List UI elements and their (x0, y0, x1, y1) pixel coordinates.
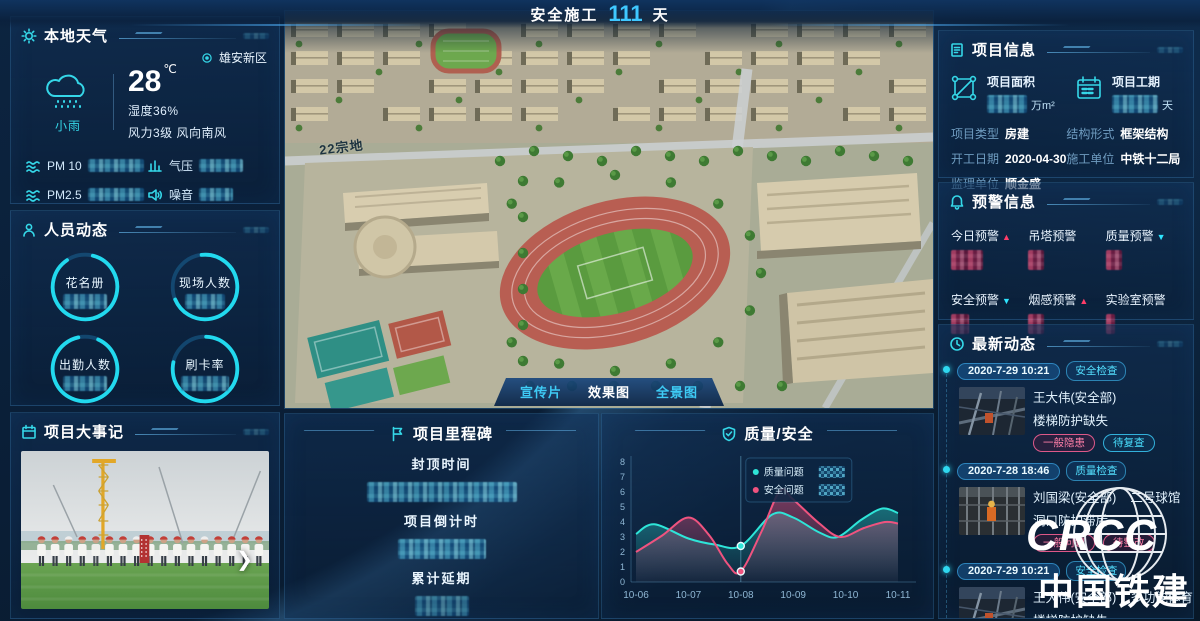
svg-text:6: 6 (620, 487, 625, 497)
document-icon (949, 42, 965, 58)
alarm-bell-icon (949, 194, 965, 210)
milestone-label: 累计延期 (411, 568, 471, 587)
quality-safety-chart: 01234567810-0610-0710-0810-0910-1010-11质… (602, 444, 933, 616)
area-icon (949, 73, 979, 103)
tab-panorama[interactable]: 全景图 (656, 382, 698, 401)
events-title: 项目大事记 (44, 421, 124, 442)
trend-arrow: ▲ (1079, 296, 1088, 306)
alert-today: 今日预警▲ (951, 227, 1028, 275)
event-photo: ❯ (21, 451, 269, 609)
timeline-dot (943, 466, 950, 473)
wind: 风力3级 风向南风 (128, 124, 227, 141)
status-pill: 一般隐患 (1033, 434, 1095, 452)
ring-roster: 花名册 (44, 251, 126, 325)
header-title-prefix: 安全施工 (530, 4, 598, 25)
metric-noise: 噪音 (147, 186, 269, 203)
svg-text:3: 3 (620, 532, 625, 542)
ring-value-redacted (63, 376, 107, 391)
pm10-value-redacted (88, 159, 144, 172)
svg-text:安全问题: 安全问题 (764, 484, 804, 497)
sun-icon (21, 28, 37, 44)
dashboard: 安全施工 111 天 本地天气 雄安新区 小雨 (0, 0, 1200, 621)
pm25-value-redacted (88, 188, 144, 201)
news-issue: 楼梯防护缺失 (1033, 610, 1193, 619)
ring-onsite: 现场人数 (164, 251, 246, 325)
trend-arrow: ▼ (1157, 232, 1166, 242)
aerial-render (285, 11, 933, 408)
carousel-next-button[interactable]: ❯ (236, 547, 253, 572)
news-photo (959, 387, 1025, 435)
alerts-panel: 预警信息 今日预警▲ 吊塔预警 质量预警▼ 安全预警▼ 烟感预警▲ 实验室预警 (938, 182, 1194, 320)
milestone-title: 项目里程碑 (413, 423, 493, 444)
info-title: 项目信息 (972, 39, 1036, 60)
header-title-suffix: 天 (653, 4, 670, 25)
weather-panel: 本地天气 雄安新区 小雨 28℃ 湿度36% 风力3级 风向南风 (10, 16, 280, 204)
trend-arrow: ▼ (1002, 296, 1011, 306)
svg-text:10-10: 10-10 (833, 590, 859, 601)
svg-text:质量问题: 质量问题 (764, 466, 804, 479)
ring-label: 现场人数 (179, 274, 231, 291)
news-date: 2020-7-29 10:21 (957, 363, 1060, 380)
alert-value-redacted (951, 250, 983, 270)
news-panel: 最新动态 2020-7-29 10:21 安全检查 王大伟(安全部) 楼梯防护缺… (938, 324, 1194, 619)
ring-label: 花名册 (65, 274, 104, 291)
svg-text:0: 0 (620, 577, 625, 587)
stat-area: 项目面积 万m² (949, 73, 1064, 113)
news-photo (959, 487, 1025, 535)
alerts-title: 预警信息 (972, 191, 1036, 212)
calendar-icon (21, 424, 37, 440)
news-person: 王大伟(安全部) (1033, 587, 1116, 606)
stat-label: 项目工期 (1112, 73, 1173, 90)
news-tag: 安全检查 (1066, 361, 1126, 381)
personnel-title: 人员动态 (44, 219, 108, 240)
weather-location: 雄安新区 (199, 49, 267, 66)
status-pill: 待整改 (1103, 534, 1155, 552)
news-place: 二号球馆 (1130, 487, 1180, 506)
svg-text:2: 2 (620, 547, 625, 557)
news-photo (959, 587, 1025, 619)
pressure-icon (147, 158, 163, 174)
news-tag: 安全检查 (1066, 561, 1126, 581)
milestone-panel: 项目里程碑 封顶时间 项目倒计时 累计延期 (284, 413, 599, 619)
trend-arrow: ▲ (1002, 232, 1011, 242)
alert-value-redacted (1028, 250, 1044, 270)
project-info-panel: 项目信息 项目面积 万m² (938, 30, 1194, 178)
svg-text:1: 1 (620, 562, 625, 572)
quality-safety-panel: 质量/安全 01234567810-0610-0710-0810-0910-10… (601, 413, 934, 619)
alert-value-redacted (1106, 250, 1122, 270)
svg-text:4: 4 (620, 517, 625, 527)
noise-value-redacted (199, 188, 233, 201)
location-pin-icon (199, 52, 215, 64)
news-date: 2020-7-29 10:21 (957, 563, 1060, 580)
person-icon (21, 222, 37, 238)
calendar-icon (1074, 73, 1104, 103)
milestone-label: 项目倒计时 (404, 511, 479, 530)
timeline-dot (943, 366, 950, 373)
temperature: 28℃ (128, 63, 227, 97)
personnel-panel: 人员动态 花名册 现场人数 出勤人数 刷卡率 (10, 210, 280, 406)
ring-attendance: 出勤人数 (44, 333, 126, 407)
chart-title: 质量/安全 (744, 423, 813, 444)
clock-icon (949, 336, 965, 352)
pm-icon (25, 158, 41, 174)
field-contractor: 施工单位中铁十二局 (1066, 150, 1185, 167)
news-tag: 质量检查 (1066, 461, 1126, 481)
ring-swipe-rate: 刷卡率 (164, 333, 246, 407)
ring-value-redacted (181, 376, 229, 391)
rain-cloud-icon (42, 70, 94, 110)
stat-duration: 项目工期 天 (1074, 73, 1189, 113)
alert-crane: 吊塔预警 (1028, 227, 1105, 275)
speaker-icon (147, 187, 163, 203)
timeline-dot (943, 566, 950, 573)
duration-value-redacted (1112, 95, 1158, 113)
status-pill: 待复查 (1103, 434, 1155, 452)
stat-label: 项目面积 (987, 73, 1055, 90)
milestone-label: 封顶时间 (411, 454, 471, 473)
svg-text:10-07: 10-07 (676, 590, 702, 601)
ring-label: 刷卡率 (185, 356, 224, 373)
status-pill: 一般问题 (1033, 534, 1095, 552)
metric-pm25: PM2.5 (25, 186, 147, 203)
field-structure: 结构形式框架结构 (1066, 125, 1185, 142)
ring-label: 出勤人数 (59, 356, 111, 373)
svg-text:10-06: 10-06 (623, 590, 649, 601)
shield-check-icon (721, 426, 737, 442)
pm-icon (25, 187, 41, 203)
ring-value-redacted (63, 294, 107, 309)
svg-text:8: 8 (620, 457, 625, 467)
news-person: 王大伟(安全部) (1033, 387, 1116, 406)
news-issue: 楼梯防护缺失 (1033, 410, 1193, 429)
metric-pressure: 气压 (147, 157, 269, 174)
svg-text:5: 5 (620, 502, 625, 512)
news-place: 多功能体育馆 (1130, 587, 1194, 606)
tab-promo-video[interactable]: 宣传片 (520, 382, 562, 401)
news-item[interactable]: 2020-7-28 18:46 质量检查 刘国梁(安全部)二号球馆 洞口防护滞后… (957, 461, 1193, 552)
header-days-count: 111 (608, 3, 642, 25)
ring-value-redacted (185, 294, 225, 309)
group-photo (21, 451, 269, 609)
svg-text:10-11: 10-11 (886, 590, 911, 601)
topping-date-redacted (367, 482, 517, 502)
pressure-value-redacted (199, 159, 243, 172)
tab-rendering[interactable]: 效果图 (588, 382, 630, 401)
flag-icon (390, 426, 406, 442)
stat-unit: 天 (1162, 97, 1173, 113)
weather-title: 本地天气 (44, 25, 108, 46)
news-item[interactable]: 2020-7-29 10:21 安全检查 王大伟(安全部)多功能体育馆 楼梯防护… (957, 561, 1193, 619)
news-title: 最新动态 (972, 333, 1036, 354)
news-person: 刘国梁(安全部) (1033, 487, 1116, 506)
stat-unit: 万m² (1031, 97, 1055, 113)
field-start-date: 开工日期2020-04-30 (951, 150, 1066, 167)
svg-text:10-09: 10-09 (780, 590, 806, 601)
area-value-redacted (987, 95, 1027, 113)
field-project-type: 项目类型房建 (951, 125, 1066, 142)
news-issue: 洞口防护滞后 (1033, 510, 1193, 529)
viewer-tabs: 宣传片 效果图 全景图 (494, 378, 724, 406)
metric-pm10: PM 10 (25, 157, 147, 174)
news-item[interactable]: 2020-7-29 10:21 安全检查 王大伟(安全部) 楼梯防护缺失 一般隐… (957, 361, 1193, 452)
svg-text:7: 7 (620, 472, 625, 482)
delay-redacted (415, 596, 469, 616)
weather-condition: 小雨 (25, 117, 111, 134)
humidity: 湿度36% (128, 102, 227, 119)
alert-quality: 质量预警▼ (1106, 227, 1183, 275)
top-header: 安全施工 111 天 (0, 0, 1200, 28)
countdown-redacted (398, 539, 486, 559)
aerial-viewer: 22宗地 宣传片 效果图 全景图 (284, 10, 934, 409)
events-panel: 项目大事记 (10, 412, 280, 619)
svg-text:10-08: 10-08 (728, 590, 754, 601)
news-date: 2020-7-28 18:46 (957, 463, 1060, 480)
